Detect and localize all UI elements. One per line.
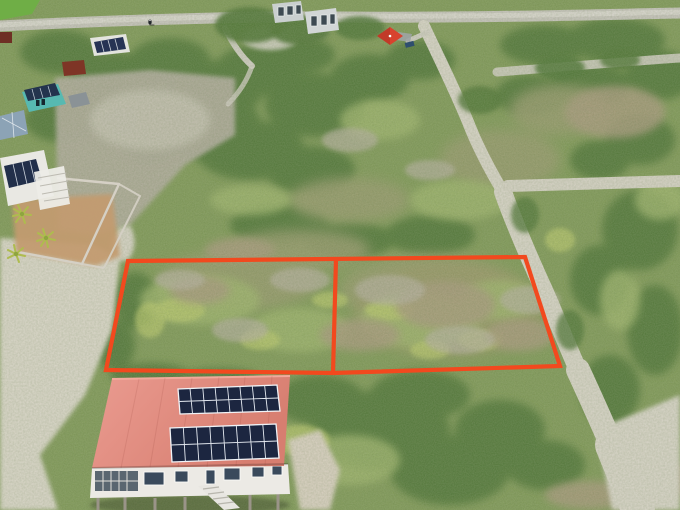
cottage-window (36, 100, 40, 106)
brown-shed (0, 32, 12, 43)
porch-lattice (95, 471, 138, 491)
gazebo-finial (389, 35, 392, 38)
deck-stairs (34, 166, 70, 210)
aerial-photo (0, 0, 680, 510)
solar-array-lower (170, 424, 279, 462)
aerial-photo-canvas (0, 0, 680, 510)
plot-divider (333, 259, 336, 373)
red-shed (62, 60, 86, 76)
cottage-window (42, 99, 46, 105)
house (90, 376, 290, 510)
solar-array-upper (178, 385, 280, 414)
